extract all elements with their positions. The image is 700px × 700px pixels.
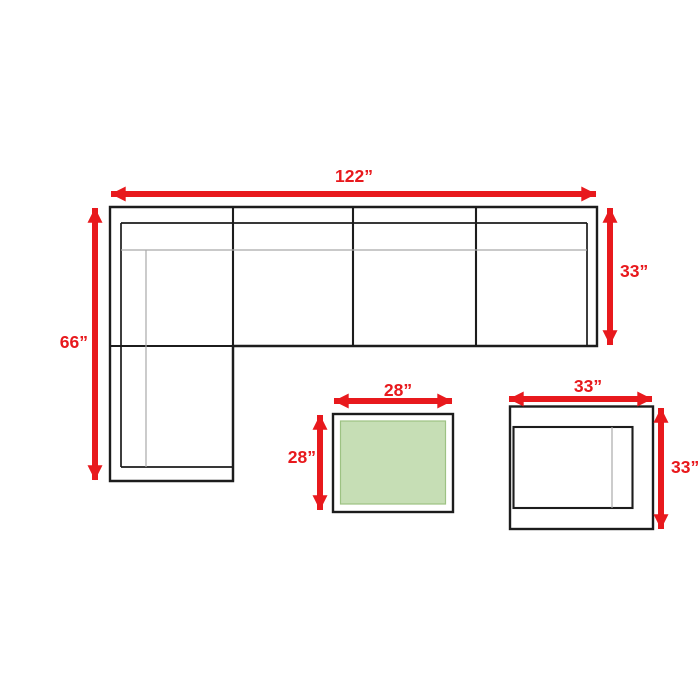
sectional-depth-label: 33”: [620, 261, 648, 281]
coffee-table-depth-label: 28”: [288, 447, 316, 467]
end-table: 33” 33”: [509, 376, 699, 529]
sectional-width-label: 122”: [335, 166, 373, 186]
end-table-inner-outline: [514, 427, 633, 508]
end-table-depth-label: 33”: [671, 457, 699, 477]
sectional-length-label: 66”: [60, 332, 88, 352]
furniture-dimensions-diagram: 122” 66” 33” 28” 28” 33” 33”: [0, 0, 700, 700]
coffee-table-width-label: 28”: [384, 380, 412, 400]
diagram-canvas: 122” 66” 33” 28” 28” 33” 33”: [0, 0, 700, 700]
coffee-table-top-surface: [341, 421, 446, 504]
end-table-width-label: 33”: [574, 376, 602, 396]
coffee-table: 28” 28”: [288, 380, 453, 512]
